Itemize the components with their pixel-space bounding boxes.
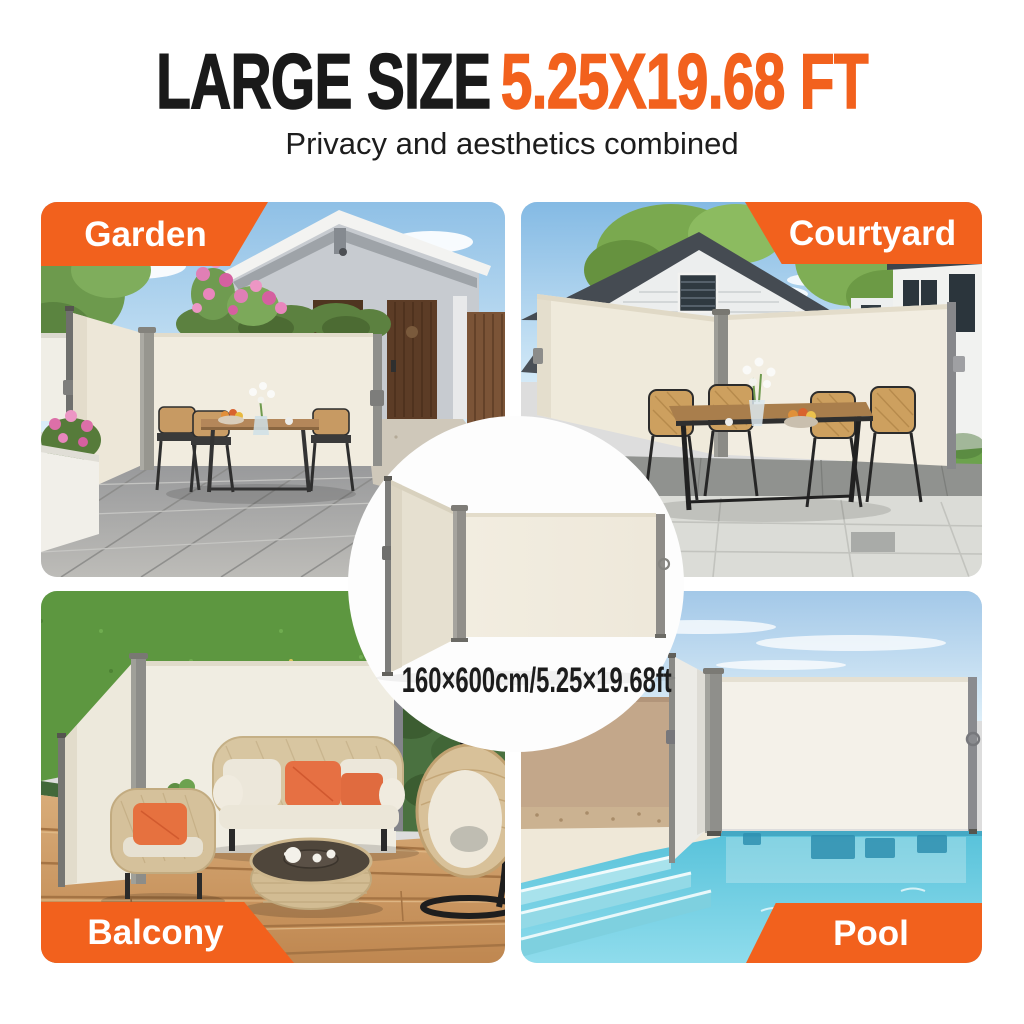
dimension-label: 160×600cm/5.25×19.68ft	[402, 663, 630, 698]
pool-badge-label: Pool	[833, 916, 909, 951]
page-title-black: LARGE SIZE	[156, 37, 490, 125]
page-title-orange: 5.25X19.68 FT	[501, 37, 868, 125]
page-title: LARGE SIZE5.25X19.68 FT	[138, 42, 886, 120]
coffee-table	[243, 839, 383, 918]
tea-set	[284, 847, 338, 868]
page-subtitle: Privacy and aesthetics combined	[0, 126, 1024, 162]
planter-front-left	[41, 410, 101, 552]
balcony-badge-label: Balcony	[87, 915, 223, 950]
pool-badge: Pool	[746, 903, 982, 963]
retractable-side-awning	[376, 476, 676, 685]
awning-product-render	[348, 416, 684, 752]
garden-badge: Garden	[41, 202, 268, 266]
garden-badge-label: Garden	[84, 217, 207, 252]
gravel-strip	[521, 807, 669, 829]
courtyard-badge-label: Courtyard	[789, 216, 956, 251]
courtyard-badge: Courtyard	[745, 202, 982, 264]
size-callout-circle: 160×600cm/5.25×19.68ft	[348, 416, 684, 752]
